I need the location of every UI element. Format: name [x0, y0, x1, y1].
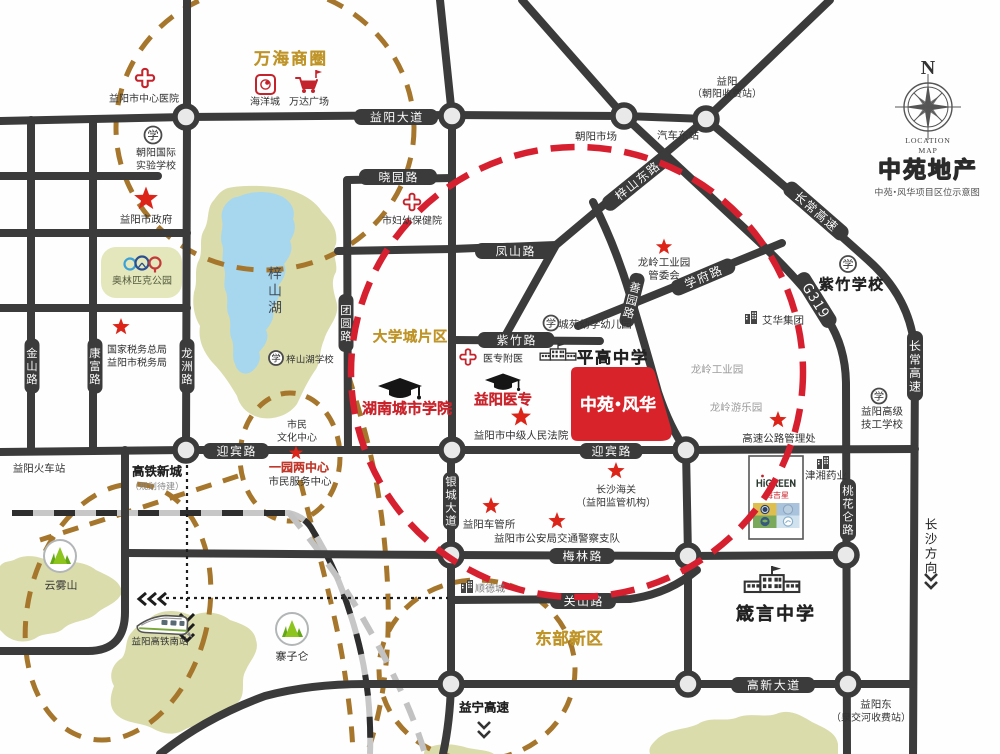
svg-text:MAP: MAP — [918, 146, 937, 155]
svg-text:N: N — [921, 57, 936, 79]
svg-text:LOCATION: LOCATION — [905, 136, 950, 145]
